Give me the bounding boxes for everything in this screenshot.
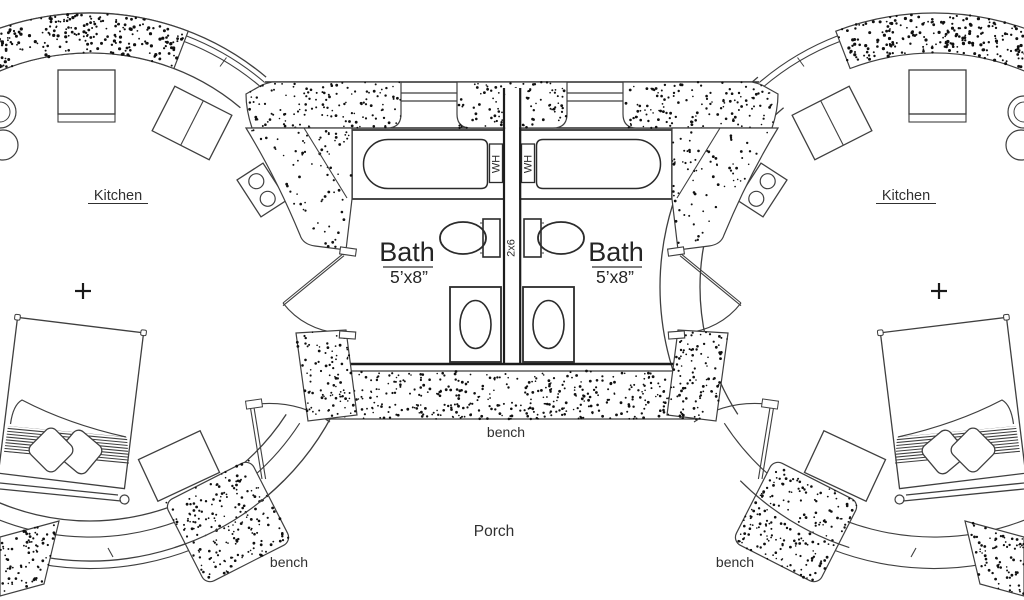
svg-text:Bath: Bath <box>379 237 435 267</box>
svg-text:bench: bench <box>716 554 754 570</box>
svg-text:Bath: Bath <box>588 237 644 267</box>
svg-text:WH: WH <box>491 155 503 173</box>
svg-text:Kitchen: Kitchen <box>882 188 930 204</box>
svg-text:bench: bench <box>270 554 308 570</box>
svg-text:2x6: 2x6 <box>506 239 518 257</box>
svg-text:5’x8”: 5’x8” <box>390 267 428 287</box>
svg-text:WH: WH <box>523 155 535 173</box>
svg-text:5’x8”: 5’x8” <box>596 267 634 287</box>
svg-text:bench: bench <box>487 424 525 440</box>
svg-text:Kitchen: Kitchen <box>94 188 142 204</box>
svg-text:Porch: Porch <box>474 523 515 540</box>
